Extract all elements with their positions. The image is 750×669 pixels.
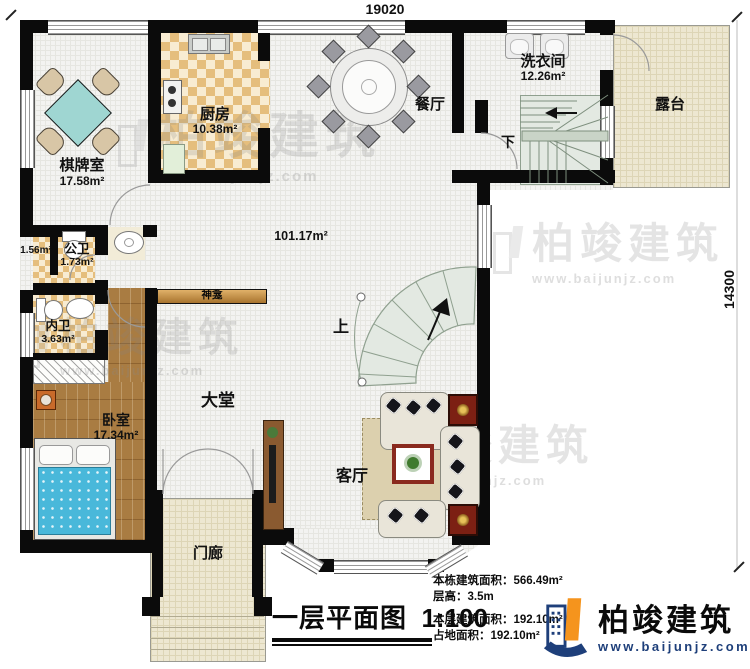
sofa-loveseat <box>378 500 446 538</box>
stat-value: 192.10m² <box>491 630 540 642</box>
room-label-bedroom: 卧室 <box>88 413 144 428</box>
nightstand <box>36 390 56 410</box>
kitchen-sink <box>188 34 230 54</box>
room-label-chess: 棋牌室 <box>36 158 128 174</box>
side-cabinet <box>448 394 478 426</box>
watermark-text: 柏竣建筑 <box>532 210 724 271</box>
brand-logo-icon <box>542 596 590 662</box>
room-label-dining: 餐厅 <box>400 97 460 113</box>
wall <box>600 158 613 185</box>
dimension-width: 19020 <box>345 2 425 17</box>
wall <box>33 353 108 360</box>
wall <box>20 540 160 553</box>
wall <box>20 357 33 448</box>
wall <box>143 225 157 237</box>
room-label-inner-bath: 内卫 <box>34 320 82 333</box>
window <box>477 205 492 268</box>
porch-steps <box>150 616 264 660</box>
wall <box>258 128 270 183</box>
stat-label: 本层建筑面积： <box>433 614 514 626</box>
wall <box>20 168 33 230</box>
wall <box>475 100 488 133</box>
wall <box>405 20 507 33</box>
window <box>20 90 35 168</box>
wall <box>148 33 161 173</box>
dimension-tick <box>731 11 742 22</box>
brand-name: 柏竣建筑 <box>598 605 750 636</box>
stat-value: 3.5m <box>468 591 494 603</box>
room-area-laundry: 12.26m² <box>508 70 578 83</box>
wall <box>452 33 464 133</box>
room-area-public-bath: 1.73m² <box>54 257 100 268</box>
wall <box>95 280 108 304</box>
window <box>20 448 35 530</box>
drawing-title: 一层平面图 <box>272 603 407 633</box>
watermark-logo-icon <box>490 224 524 272</box>
side-cabinet <box>448 504 478 536</box>
window <box>600 106 615 158</box>
coffee-table <box>392 444 434 484</box>
tv-cabinet <box>263 420 284 530</box>
hall-basin <box>114 231 144 254</box>
watermark-2: 柏竣建筑 www.baijunjz.com <box>490 210 724 286</box>
porch-column <box>142 597 160 616</box>
stat-footprint-area: 占地面积：192.10m² <box>433 627 540 643</box>
dining-table <box>330 48 408 126</box>
wall <box>600 25 613 35</box>
dimension-tick <box>733 561 744 572</box>
window <box>258 20 405 35</box>
wall <box>452 170 615 183</box>
porch-column <box>254 597 272 616</box>
window <box>334 560 428 574</box>
wall <box>20 290 33 313</box>
window <box>48 20 148 35</box>
room-label-laundry: 洗衣间 <box>505 54 581 70</box>
wall <box>152 490 163 597</box>
wall <box>258 33 270 61</box>
stairs-down-label: 下 <box>499 135 517 150</box>
title-underline <box>272 638 432 642</box>
fridge <box>163 144 185 174</box>
room-label-living: 客厅 <box>320 469 384 486</box>
room-label-public-bath: 公卫 <box>54 243 100 256</box>
wardrobe <box>33 358 105 384</box>
hall-area: 101.17m² <box>256 230 346 243</box>
stat-total-area: 本栋建筑面积：566.49m² <box>433 572 563 588</box>
watermark-url: www.baijunjz.com <box>532 271 724 286</box>
wall <box>20 20 33 90</box>
bedroom-entry-floor <box>108 288 145 384</box>
stat-value: 566.49m² <box>514 575 563 587</box>
shrine-label: 神龛 <box>157 290 267 301</box>
brand-url: www.baijunjz.com <box>598 639 750 654</box>
room-area-kitchen: 10.38m² <box>180 123 250 136</box>
room-label-kitchen: 厨房 <box>183 107 247 123</box>
closet-area: 1.56m² <box>12 246 60 257</box>
room-label-terrace: 露台 <box>638 97 702 113</box>
room-area-inner-bath: 3.63m² <box>30 334 86 345</box>
dimension-tick <box>5 9 16 20</box>
wall <box>477 183 490 205</box>
stairs-up-label: 上 <box>330 320 352 337</box>
dimension-height: 14300 <box>722 270 742 309</box>
stat-label: 占地面积： <box>433 630 491 642</box>
bed <box>34 438 116 540</box>
stove <box>163 80 182 114</box>
stat-floor-height: 层高：3.5m <box>433 588 494 604</box>
stat-label: 层高： <box>433 591 468 603</box>
room-label-lobby: 大堂 <box>186 392 250 410</box>
sofa-side <box>440 426 480 510</box>
floor-plan-canvas: 柏竣建筑 www.baijunjz.com 柏竣建筑 www.baijunjz.… <box>0 0 750 669</box>
room-area-bedroom: 17.34m² <box>84 429 148 442</box>
wall <box>600 70 613 108</box>
room-label-porch: 门廊 <box>178 546 238 562</box>
toilet-bowl <box>44 300 63 320</box>
bathroom-sink <box>66 298 94 319</box>
wall <box>148 20 258 33</box>
room-area-chess: 17.58m² <box>36 175 128 188</box>
title-underline-thin <box>272 644 432 646</box>
brand-logo: 柏竣建筑 www.baijunjz.com <box>542 596 750 662</box>
stat-label: 本栋建筑面积： <box>433 575 514 587</box>
